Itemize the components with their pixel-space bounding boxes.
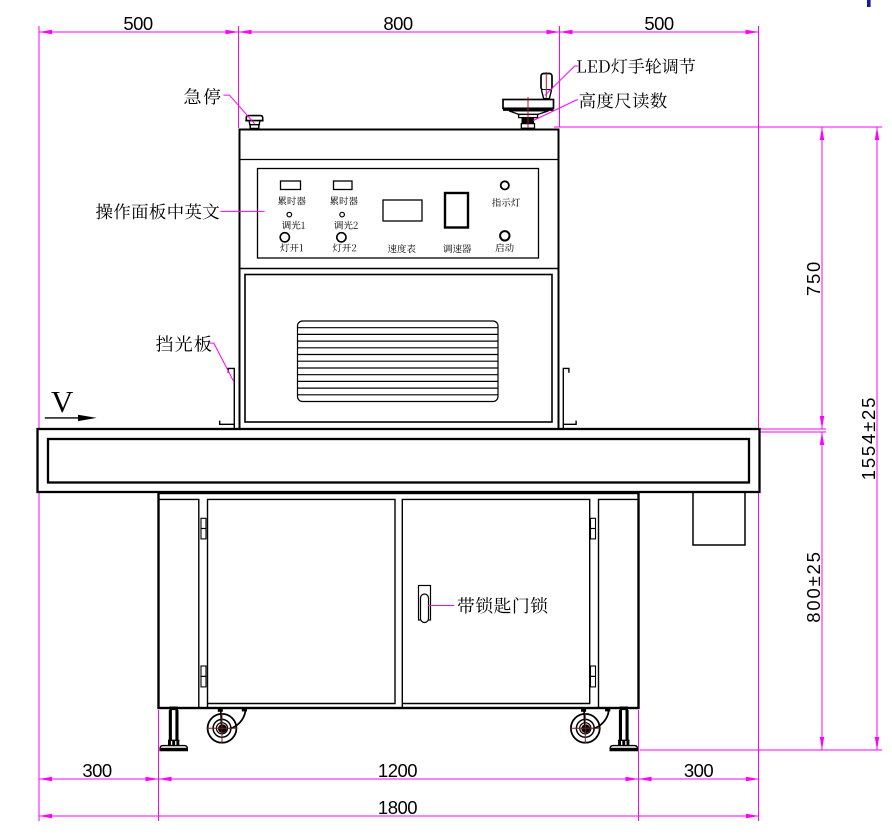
svg-text:500: 500 (644, 13, 674, 34)
svg-text:1800: 1800 (378, 797, 417, 818)
svg-text:300: 300 (82, 760, 112, 781)
svg-text:300: 300 (684, 760, 714, 781)
svg-text:500: 500 (123, 13, 153, 34)
svg-text:V: V (51, 384, 74, 419)
svg-text:800±25: 800±25 (803, 550, 824, 622)
svg-text:800: 800 (383, 13, 413, 34)
svg-text:1200: 1200 (378, 760, 417, 781)
svg-text:750: 750 (803, 260, 824, 296)
svg-text:1554±25: 1554±25 (858, 396, 879, 481)
